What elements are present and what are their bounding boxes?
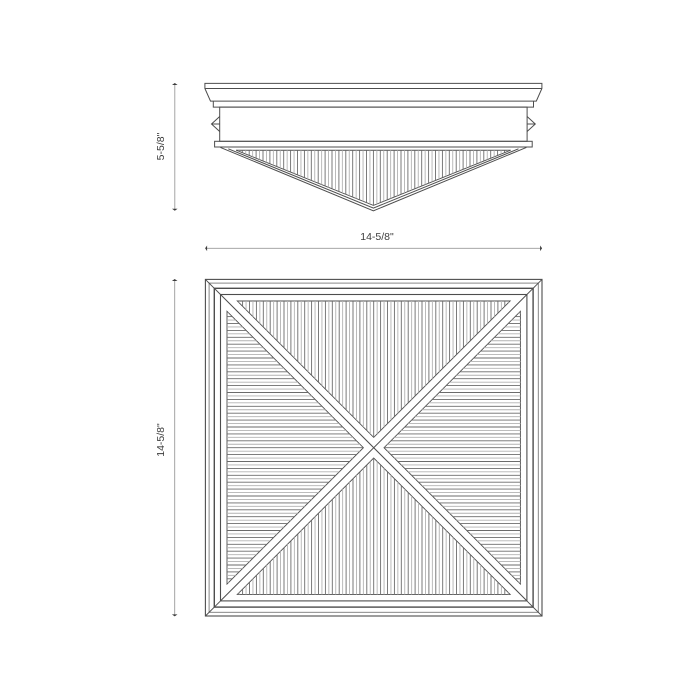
svg-text:5-5/8": 5-5/8" <box>155 132 167 160</box>
svg-text:14-5/8": 14-5/8" <box>360 231 394 243</box>
svg-text:14-5/8": 14-5/8" <box>155 423 167 457</box>
